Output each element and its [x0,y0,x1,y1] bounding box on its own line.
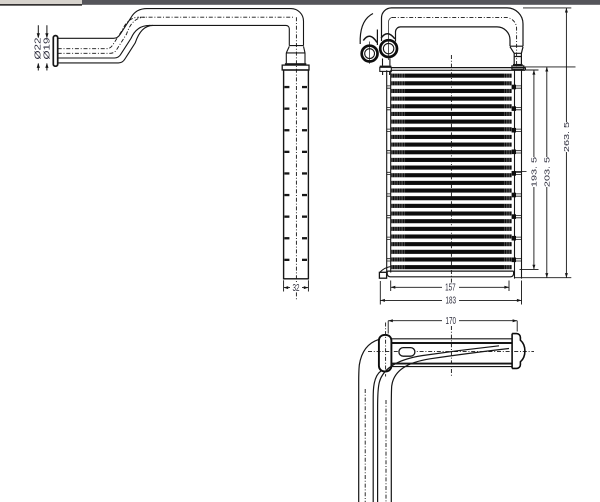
svg-text:157: 157 [445,281,456,293]
svg-text:Ø22: Ø22 [34,37,43,59]
svg-text:Ø19: Ø19 [43,37,52,59]
svg-text:183: 183 [446,294,457,306]
svg-text:263. 5: 263. 5 [563,122,571,152]
svg-text:32: 32 [293,281,300,293]
svg-text:170: 170 [446,314,457,326]
svg-text:203. 5: 203. 5 [543,157,551,187]
svg-text:193. 5: 193. 5 [530,157,538,187]
